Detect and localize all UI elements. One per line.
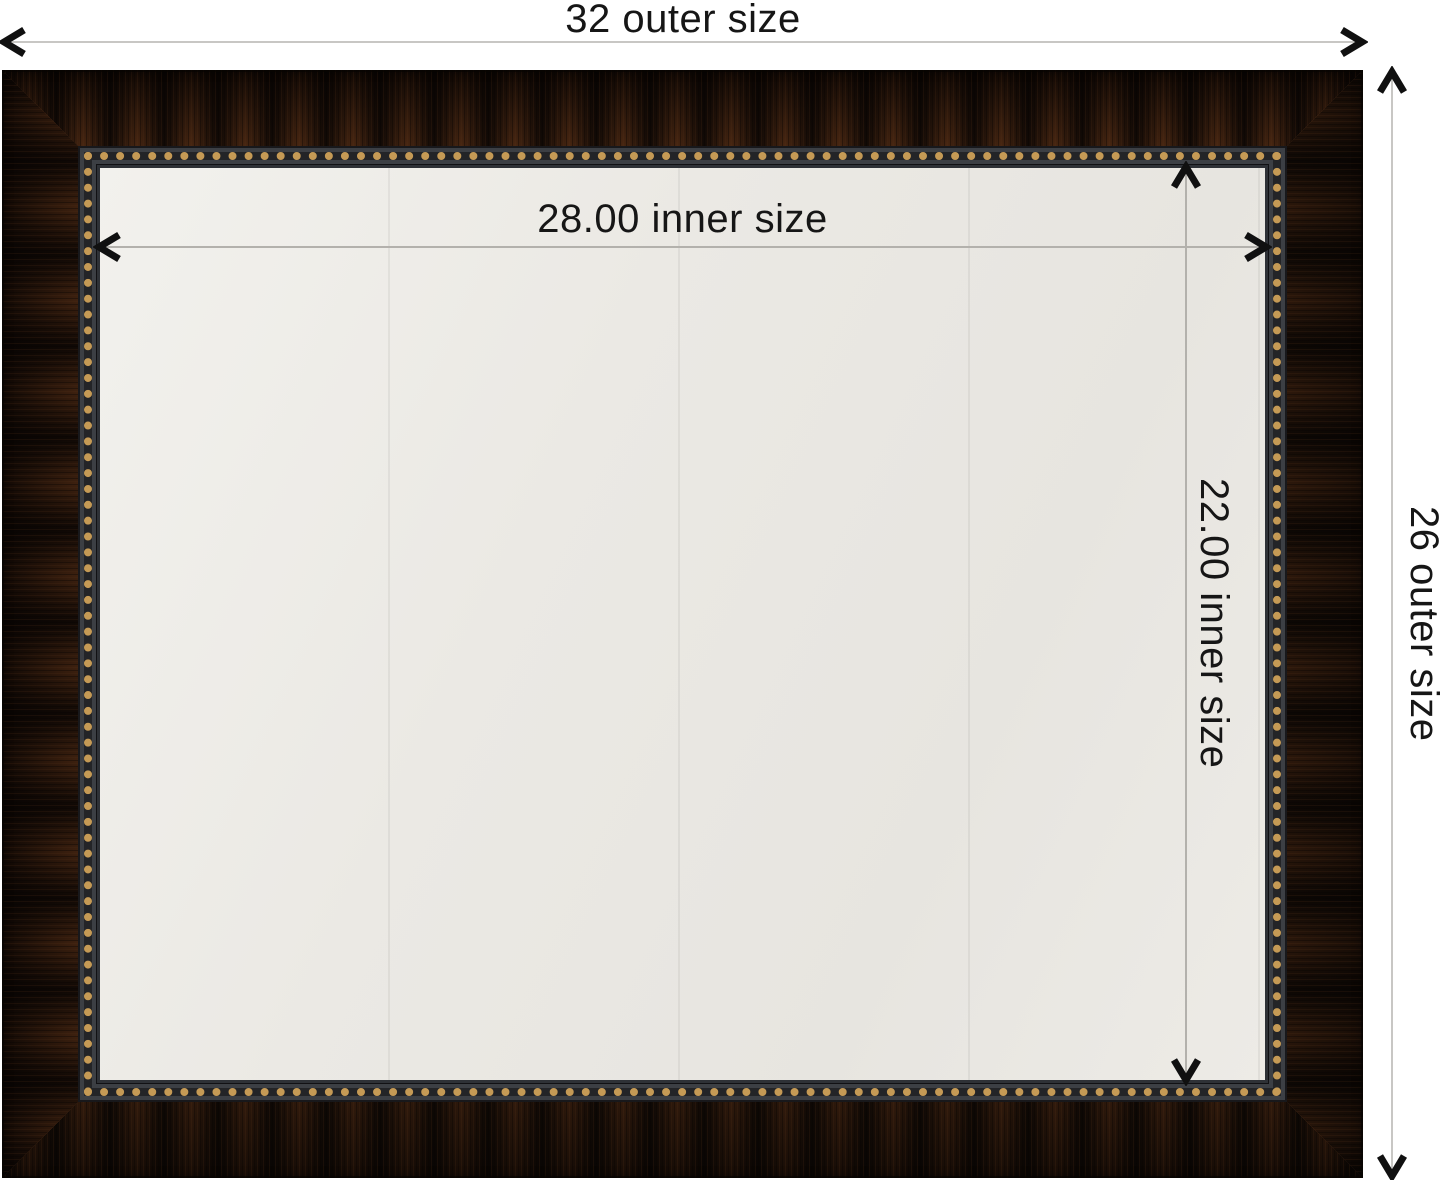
outer-height-dimension-line	[1391, 70, 1393, 1178]
inner-width-label: 28.00 inner size	[99, 197, 1266, 241]
mirror-glass	[100, 168, 1265, 1080]
product-dimension-diagram: 32 outer size 26 outer size 28.00 inner …	[0, 0, 1445, 1180]
inner-width-dimension-line	[99, 246, 1266, 248]
outer-height-label: 26 outer size	[1402, 70, 1445, 1178]
outer-width-label: 32 outer size	[0, 0, 1366, 41]
outer-width-dimension-line	[4, 41, 1362, 43]
inner-height-label: 22.00 inner size	[1192, 165, 1236, 1082]
inner-height-dimension-line	[1185, 165, 1187, 1082]
